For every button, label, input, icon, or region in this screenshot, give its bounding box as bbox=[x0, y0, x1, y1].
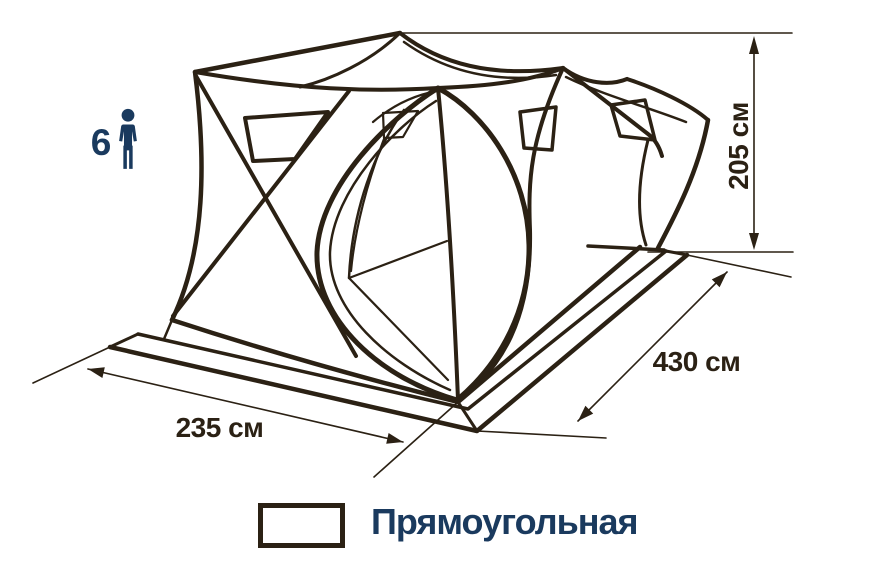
length-dimension-label: 430 см bbox=[644, 347, 749, 377]
tent-dimensions-diagram: 6 205 см 430 см 235 см Прямоугольная bbox=[0, 0, 875, 583]
tent-roof bbox=[195, 33, 708, 122]
person-icon bbox=[112, 108, 144, 172]
tent-door-opening bbox=[317, 88, 529, 400]
width-dimension-label: 235 см bbox=[167, 413, 272, 443]
tent-left-wall bbox=[164, 72, 458, 402]
tent-drawing bbox=[0, 0, 875, 583]
height-dimension-label: 205 см bbox=[724, 99, 754, 193]
